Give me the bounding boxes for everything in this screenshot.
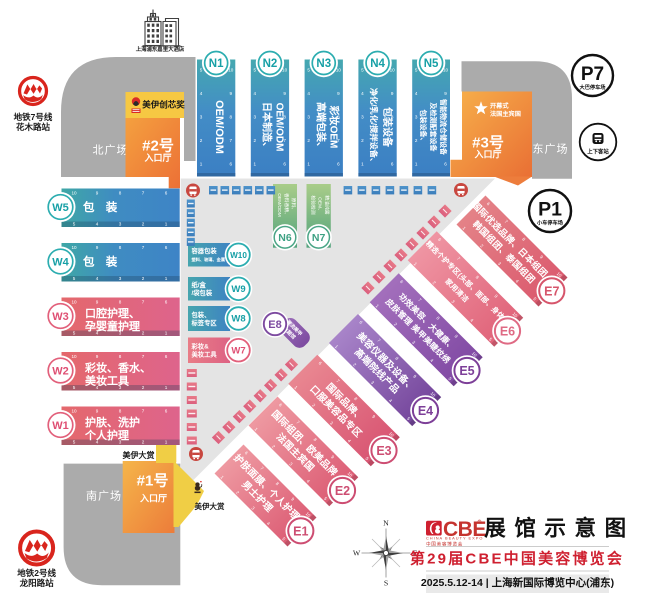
svg-text:10: 10 xyxy=(71,191,77,196)
svg-text:南广场: 南广场 xyxy=(86,489,122,503)
svg-text:1: 1 xyxy=(307,162,310,167)
svg-text:5: 5 xyxy=(73,385,76,390)
svg-text:5: 5 xyxy=(73,439,76,444)
svg-text:6: 6 xyxy=(230,162,233,167)
svg-text:7: 7 xyxy=(142,191,145,196)
svg-text:精油纯露: 精油纯露 xyxy=(324,195,331,214)
svg-text:个人护理: 个人护理 xyxy=(84,428,129,442)
svg-text:2: 2 xyxy=(361,138,364,143)
svg-text:6: 6 xyxy=(165,300,168,305)
svg-text:9: 9 xyxy=(96,409,99,414)
svg-text:7: 7 xyxy=(230,138,233,143)
svg-text:4: 4 xyxy=(96,221,99,226)
svg-text:8: 8 xyxy=(119,191,122,196)
svg-text:E5: E5 xyxy=(459,364,474,378)
svg-text:包装、: 包装、 xyxy=(192,310,211,319)
svg-text:W9: W9 xyxy=(231,284,245,295)
svg-text:2: 2 xyxy=(307,138,310,143)
svg-text:净化/乳化/搅拌设备、: 净化/乳化/搅拌设备、 xyxy=(369,88,379,166)
svg-text:1: 1 xyxy=(361,162,364,167)
svg-text:2: 2 xyxy=(142,385,145,390)
svg-text:彩妆、香水、: 彩妆、香水、 xyxy=(84,361,151,375)
svg-text:2: 2 xyxy=(142,221,145,226)
svg-text:E1: E1 xyxy=(293,524,308,538)
svg-text:7: 7 xyxy=(142,354,145,359)
svg-text:5: 5 xyxy=(200,68,203,73)
svg-text:9: 9 xyxy=(337,91,340,96)
svg-text:开幕式: 开幕式 xyxy=(490,102,509,110)
svg-text:W5: W5 xyxy=(52,202,69,214)
svg-text:标签专区: 标签专区 xyxy=(191,318,218,327)
svg-text:美妆工具: 美妆工具 xyxy=(192,350,218,359)
svg-text:纸/盒: 纸/盒 xyxy=(192,280,207,289)
svg-text:彩妆OEM: 彩妆OEM xyxy=(327,105,340,149)
svg-text:花木路站: 花木路站 xyxy=(16,122,51,132)
svg-text:2: 2 xyxy=(200,138,203,143)
svg-text:9: 9 xyxy=(96,354,99,359)
svg-text:3: 3 xyxy=(254,115,257,120)
svg-text:4: 4 xyxy=(307,91,310,96)
svg-text:9: 9 xyxy=(391,91,394,96)
svg-text:10: 10 xyxy=(71,409,77,414)
svg-text:10: 10 xyxy=(71,300,77,305)
svg-text:入口厅: 入口厅 xyxy=(143,153,171,163)
svg-text:9: 9 xyxy=(230,91,233,96)
svg-text:7: 7 xyxy=(142,300,145,305)
svg-text:2: 2 xyxy=(254,138,257,143)
svg-text:N7: N7 xyxy=(312,232,326,244)
svg-text:9: 9 xyxy=(96,245,99,250)
svg-text:1: 1 xyxy=(254,162,257,167)
svg-text:10: 10 xyxy=(71,354,77,359)
svg-text:美伊创芯奖: 美伊创芯奖 xyxy=(142,100,185,110)
svg-text:5: 5 xyxy=(73,221,76,226)
svg-text:E4: E4 xyxy=(418,404,433,418)
svg-text:3: 3 xyxy=(415,115,418,120)
svg-text:美伊大赏: 美伊大赏 xyxy=(195,501,225,511)
svg-text:#2号: #2号 xyxy=(142,138,174,155)
svg-text:1: 1 xyxy=(165,385,168,390)
svg-text:第29届CBE中国美容博览会: 第29届CBE中国美容博览会 xyxy=(410,550,624,568)
svg-text:4: 4 xyxy=(415,91,418,96)
svg-text:P7: P7 xyxy=(581,64,604,85)
svg-text:N5: N5 xyxy=(424,58,439,70)
svg-text:®: ® xyxy=(478,519,482,526)
svg-text:9: 9 xyxy=(96,300,99,305)
svg-text:4: 4 xyxy=(200,91,203,96)
svg-text:5: 5 xyxy=(415,68,418,73)
svg-text:5: 5 xyxy=(73,330,76,335)
svg-text:容器包装: 容器包装 xyxy=(191,246,218,255)
svg-text:3: 3 xyxy=(361,115,364,120)
svg-text:N2: N2 xyxy=(263,58,278,70)
svg-text:8: 8 xyxy=(119,245,122,250)
svg-text:高端包装、: 高端包装、 xyxy=(314,102,327,152)
svg-text:地铁2号线: 地铁2号线 xyxy=(17,568,56,578)
svg-text:W: W xyxy=(353,549,361,558)
svg-text:原料、: 原料、 xyxy=(290,198,297,212)
svg-text:3: 3 xyxy=(200,115,203,120)
svg-text:护肤、洗护: 护肤、洗护 xyxy=(85,415,140,429)
svg-text:3: 3 xyxy=(307,115,310,120)
svg-text:入口厅: 入口厅 xyxy=(139,494,167,504)
svg-text:包 装: 包 装 xyxy=(82,200,121,214)
svg-text:2: 2 xyxy=(415,138,418,143)
svg-text:OEM、: OEM、 xyxy=(317,197,323,213)
svg-text:/袋包装: /袋包装 xyxy=(192,288,213,297)
svg-text:E7: E7 xyxy=(544,284,559,298)
svg-text:1: 1 xyxy=(165,439,168,444)
svg-text:N3: N3 xyxy=(316,58,331,70)
svg-text:6: 6 xyxy=(165,409,168,414)
svg-text:法国主宾国: 法国主宾国 xyxy=(490,110,521,118)
svg-text:N1: N1 xyxy=(209,58,224,70)
svg-text:3: 3 xyxy=(119,221,122,226)
svg-text:W8: W8 xyxy=(231,314,245,325)
svg-text:2: 2 xyxy=(142,330,145,335)
svg-text:9: 9 xyxy=(96,191,99,196)
svg-text:6: 6 xyxy=(283,162,286,167)
svg-text:S: S xyxy=(384,579,388,588)
svg-text:香料香精、: 香料香精、 xyxy=(283,193,290,217)
svg-text:5: 5 xyxy=(307,68,310,73)
svg-text:6: 6 xyxy=(337,162,340,167)
svg-text:1: 1 xyxy=(200,162,203,167)
svg-text:包 装: 包 装 xyxy=(82,255,121,269)
svg-text:10: 10 xyxy=(71,245,77,250)
svg-text:包装设备: 包装设备 xyxy=(381,107,394,148)
svg-text:E3: E3 xyxy=(376,444,391,458)
svg-text:7: 7 xyxy=(142,245,145,250)
svg-text:8: 8 xyxy=(119,300,122,305)
svg-text:8: 8 xyxy=(119,409,122,414)
svg-text:龙阳路站: 龙阳路站 xyxy=(19,578,55,588)
svg-text:2: 2 xyxy=(142,276,145,281)
svg-text:上下客站: 上下客站 xyxy=(587,148,609,156)
svg-text:包装设备、: 包装设备、 xyxy=(419,110,428,145)
svg-text:塑料、玻璃、金属: 塑料、玻璃、金属 xyxy=(192,256,226,263)
svg-text:智能物流仓储设备: 智能物流仓储设备 xyxy=(439,99,448,156)
svg-text:1: 1 xyxy=(415,162,418,167)
svg-text:9: 9 xyxy=(283,91,286,96)
svg-text:6: 6 xyxy=(165,245,168,250)
svg-text:4: 4 xyxy=(361,91,364,96)
svg-text:4: 4 xyxy=(254,91,257,96)
svg-text:1: 1 xyxy=(165,221,168,226)
svg-text:地铁7号线: 地铁7号线 xyxy=(14,112,53,122)
svg-text:3: 3 xyxy=(119,276,122,281)
svg-text:N6: N6 xyxy=(278,232,292,244)
svg-text:及检测配套设备: 及检测配套设备 xyxy=(429,103,438,153)
svg-text:1: 1 xyxy=(165,276,168,281)
svg-text:彩妆&: 彩妆& xyxy=(191,342,210,351)
svg-text:6: 6 xyxy=(391,162,394,167)
svg-text:2: 2 xyxy=(142,439,145,444)
svg-text:5: 5 xyxy=(73,276,76,281)
svg-text:7: 7 xyxy=(142,409,145,414)
svg-text:W2: W2 xyxy=(52,366,69,378)
svg-text:4: 4 xyxy=(96,276,99,281)
svg-text:P1: P1 xyxy=(538,199,562,221)
svg-text:6: 6 xyxy=(165,354,168,359)
svg-text:W1: W1 xyxy=(52,420,69,432)
svg-text:N4: N4 xyxy=(370,58,385,70)
svg-text:东广场: 东广场 xyxy=(533,142,569,156)
svg-text:美伊大赏: 美伊大赏 xyxy=(123,450,155,460)
svg-text:2025.5.12-14 | 上海新国际博览中心(浦东): 2025.5.12-14 | 上海新国际博览中心(浦东) xyxy=(421,576,614,589)
svg-text:检验检测: 检验检测 xyxy=(310,195,317,214)
svg-text:N: N xyxy=(383,519,389,528)
svg-text:OEM/ODM: OEM/ODM xyxy=(213,100,225,154)
svg-text:展馆示意图: 展馆示意图 xyxy=(484,516,635,541)
svg-text:1: 1 xyxy=(165,330,168,335)
svg-text:E8: E8 xyxy=(268,319,281,331)
svg-text:6: 6 xyxy=(444,162,447,167)
svg-text:W10: W10 xyxy=(230,251,247,260)
svg-text:小车停车场: 小车停车场 xyxy=(537,219,563,227)
svg-text:9: 9 xyxy=(444,91,447,96)
svg-text:北广场: 北广场 xyxy=(93,143,129,157)
svg-text:W4: W4 xyxy=(52,257,69,269)
svg-text:口腔护理、: 口腔护理、 xyxy=(85,306,140,320)
svg-text:W3: W3 xyxy=(52,311,69,323)
svg-text:5: 5 xyxy=(254,68,257,73)
svg-text:入口厅: 入口厅 xyxy=(473,150,501,160)
svg-text:#1号: #1号 xyxy=(137,473,169,490)
svg-text:大巴停车场: 大巴停车场 xyxy=(580,83,606,91)
svg-text:上海浦东嘉里大酒店: 上海浦东嘉里大酒店 xyxy=(136,45,185,53)
svg-text:E6: E6 xyxy=(500,325,515,339)
svg-text:E2: E2 xyxy=(335,484,350,498)
svg-text:美妆工具: 美妆工具 xyxy=(85,374,129,388)
svg-text:8: 8 xyxy=(119,354,122,359)
svg-text:5: 5 xyxy=(361,68,364,73)
svg-text:OEM/ODM: OEM/ODM xyxy=(276,193,282,216)
svg-text:8: 8 xyxy=(230,115,233,120)
svg-text:日本制造、: 日本制造、 xyxy=(260,102,273,152)
svg-text:W7: W7 xyxy=(231,345,245,356)
svg-text:OEM/ODM: OEM/ODM xyxy=(273,103,284,152)
svg-text:孕婴童护理: 孕婴童护理 xyxy=(85,319,140,333)
svg-text:CHINA BEAUTY EXPO: CHINA BEAUTY EXPO xyxy=(426,535,483,540)
svg-text:6: 6 xyxy=(165,191,168,196)
